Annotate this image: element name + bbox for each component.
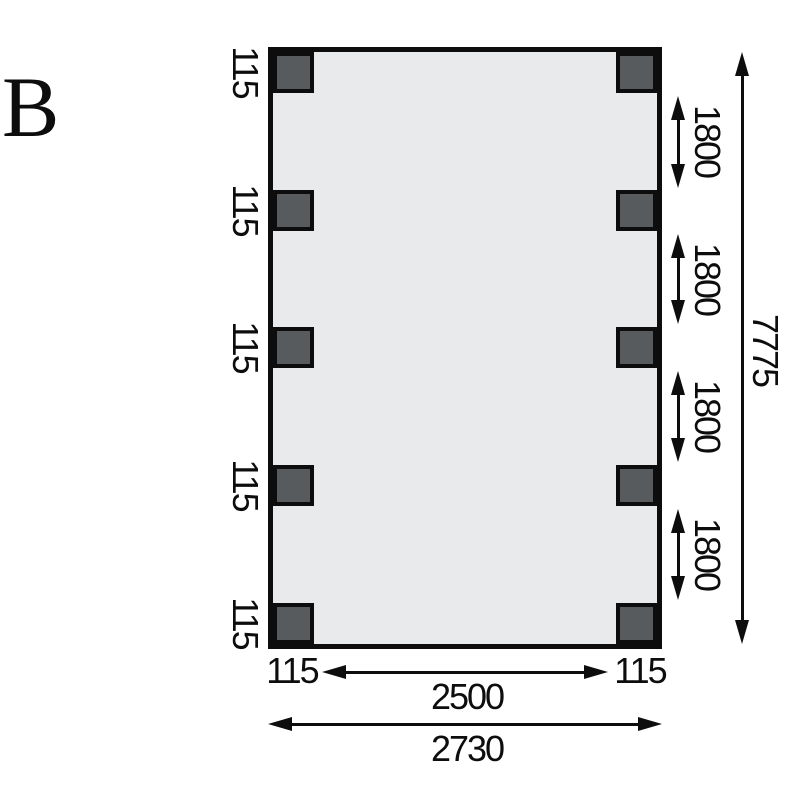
post-left-3 [273, 327, 314, 368]
post-left-1 [273, 52, 314, 93]
dimension-arrow-1800-2 [671, 234, 685, 324]
post-right-3 [616, 327, 657, 368]
arrowhead-down-icon [735, 620, 749, 644]
post-left-4 [273, 465, 314, 506]
post-width-label-1: 115 [227, 46, 263, 97]
arrowhead-up-icon [671, 96, 685, 120]
arrowhead-up-icon [671, 509, 685, 533]
post-right-2 [616, 190, 657, 231]
post-left-2 [273, 190, 314, 231]
post-right-5 [616, 603, 657, 644]
arrow-line [330, 671, 600, 674]
dimension-arrow-1800-3 [671, 371, 685, 462]
post-left-5 [273, 603, 314, 644]
gap-label-1800-2: 1800 [689, 243, 725, 315]
post-width-label-4: 115 [227, 459, 263, 510]
bottom-right-post-label: 115 [614, 653, 665, 689]
arrowhead-left-icon [322, 665, 346, 679]
total-height-label: 7775 [747, 314, 783, 386]
arrowhead-left-icon [268, 717, 292, 731]
gap-label-1800-3: 1800 [689, 380, 725, 452]
post-width-label-5: 115 [227, 597, 263, 648]
arrowhead-down-icon [671, 164, 685, 188]
arrowhead-up-icon [671, 234, 685, 258]
figure-label: B [2, 64, 59, 150]
arrowhead-down-icon [671, 438, 685, 462]
arrowhead-up-icon [671, 371, 685, 395]
post-right-4 [616, 465, 657, 506]
arrowhead-down-icon [671, 576, 685, 600]
floor-plan-outline [268, 47, 662, 649]
post-width-label-2: 115 [227, 184, 263, 235]
dimension-arrow-1800-1 [671, 96, 685, 188]
gap-label-1800-1: 1800 [689, 105, 725, 177]
arrowhead-up-icon [735, 52, 749, 76]
inner-span-label: 2500 [431, 679, 503, 715]
arrow-line [741, 60, 744, 636]
arrow-line [276, 723, 654, 726]
arrowhead-right-icon [638, 717, 662, 731]
post-right-1 [616, 52, 657, 93]
arrowhead-down-icon [671, 300, 685, 324]
post-width-label-3: 115 [227, 321, 263, 372]
gap-label-1800-4: 1800 [689, 518, 725, 590]
bottom-left-post-label: 115 [266, 653, 317, 689]
dimension-arrow-1800-4 [671, 509, 685, 600]
total-width-label: 2730 [431, 731, 503, 767]
arrowhead-right-icon [584, 665, 608, 679]
dimension-diagram: B 115 115 115 115 115 1800 1800 1800 180… [0, 0, 800, 800]
